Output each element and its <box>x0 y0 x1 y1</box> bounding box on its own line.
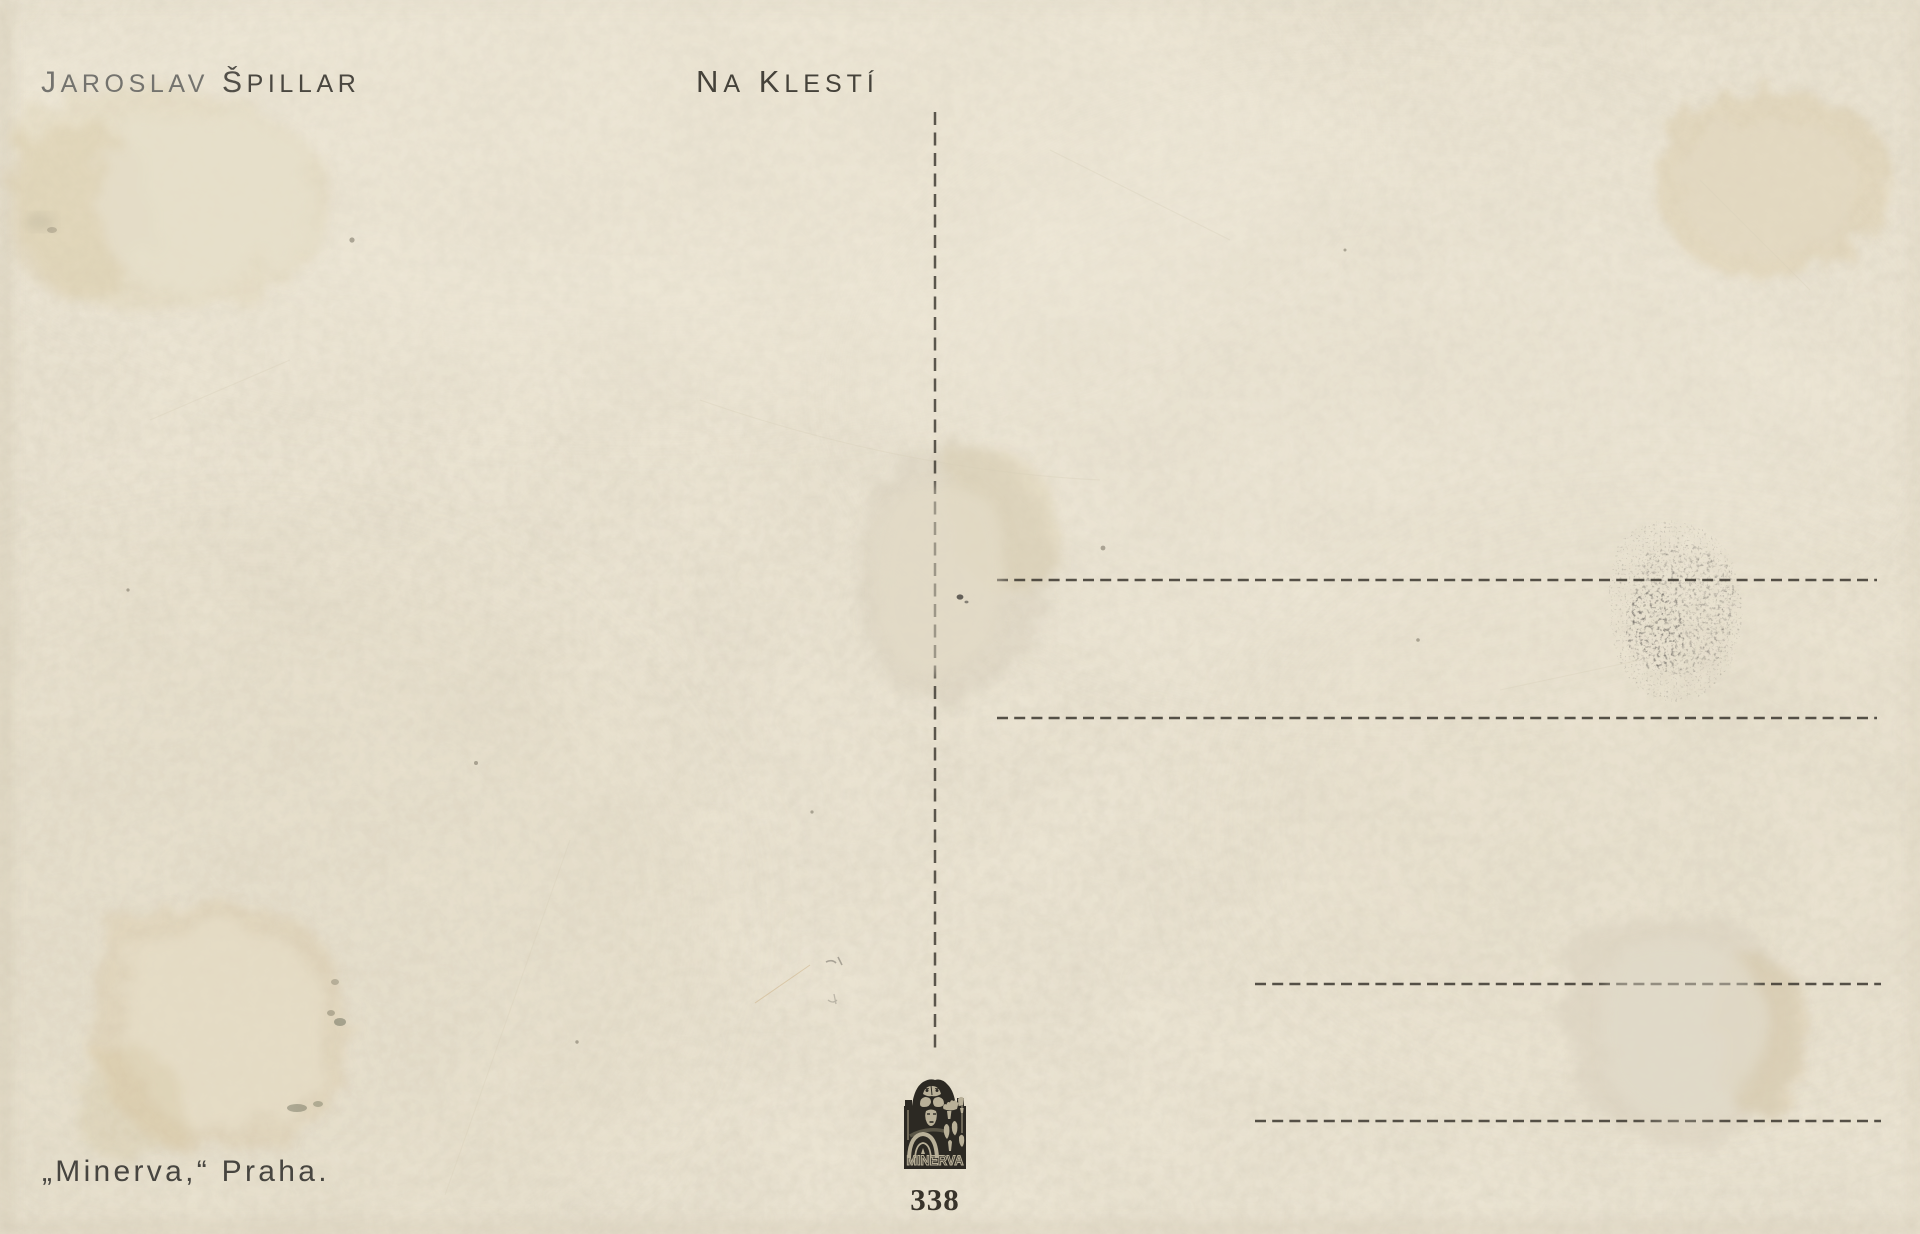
svg-text:MINERVA: MINERVA <box>907 1152 964 1168</box>
svg-text:NA KLESTÍ: NA KLESTÍ <box>696 64 879 99</box>
svg-text:338: 338 <box>910 1182 960 1217</box>
svg-text:JAROSLAV ŠPILLAR: JAROSLAV ŠPILLAR <box>41 65 360 99</box>
svg-text:„Minerva,“ Praha.: „Minerva,“ Praha. <box>42 1155 330 1188</box>
